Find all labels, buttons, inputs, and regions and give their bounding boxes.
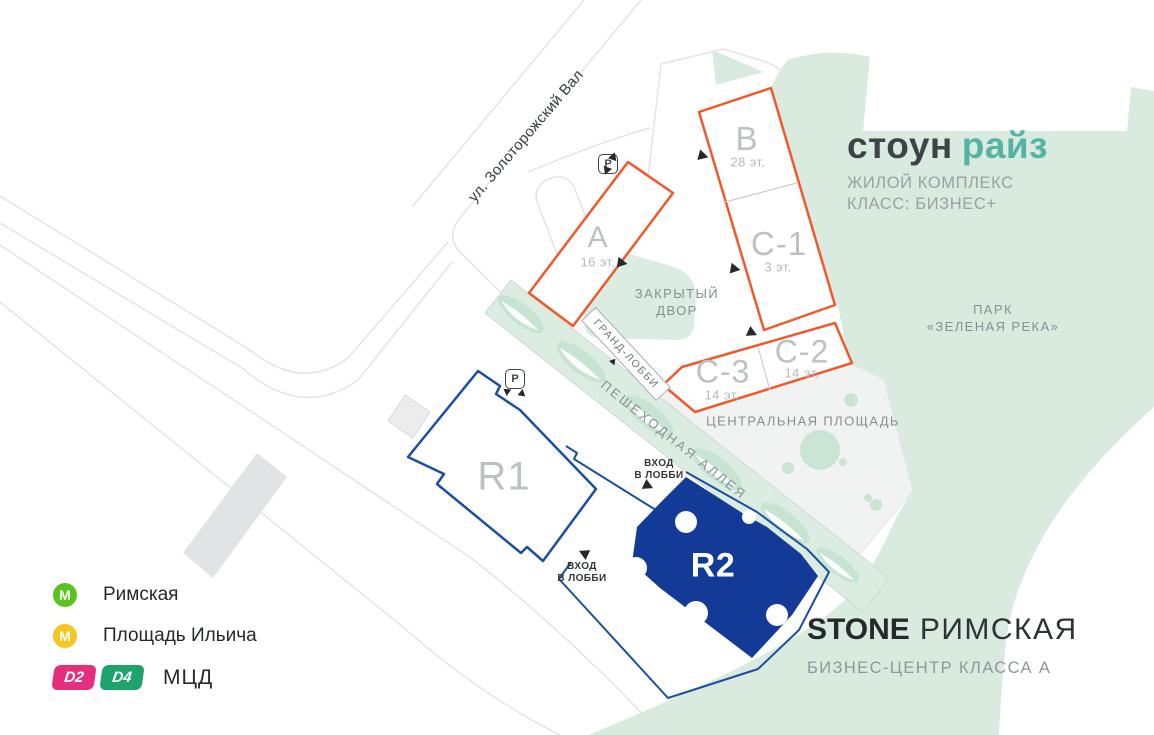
bc-brand: STONE bbox=[807, 613, 910, 646]
metro-icon: М bbox=[53, 583, 77, 607]
lobby-entrance-label-1: ВХОД В ЛОББИ bbox=[634, 458, 683, 482]
mcd-d4-label: D4 bbox=[111, 669, 133, 686]
site-plan-map: ул. Золоторожский Вал ПАРК «ЗЕЛЕНАЯ РЕКА… bbox=[0, 0, 1154, 735]
entrance1-line2: В ЛОББИ bbox=[634, 470, 683, 482]
bc-name: РИМСКАЯ bbox=[920, 613, 1078, 646]
building-r2-label: R2 bbox=[691, 547, 735, 586]
metro-icon: М bbox=[53, 624, 77, 648]
building-c3-label: C-3 bbox=[696, 354, 751, 391]
building-b-floors: 28 эт. bbox=[731, 155, 766, 170]
building-a-floors: 16 эт. bbox=[581, 255, 616, 270]
park-label-line1: ПАРК bbox=[927, 301, 1059, 318]
legend-station-rimskaya: М Римская bbox=[53, 583, 257, 607]
building-r1-label: R1 bbox=[477, 455, 530, 500]
legend-mcd: D2 D4 МЦД bbox=[53, 665, 257, 690]
central-square-label: ЦЕНТРАЛЬНАЯ ПЛОЩАДЬ bbox=[706, 413, 900, 430]
grey-building-footprint bbox=[183, 453, 287, 578]
entrance1-line1: ВХОД bbox=[634, 458, 683, 470]
park-label: ПАРК «ЗЕЛЕНАЯ РЕКА» bbox=[927, 301, 1059, 335]
station-name: Площадь Ильича bbox=[103, 625, 257, 647]
parking-icon: P bbox=[505, 369, 525, 389]
mcd-label: МЦД bbox=[163, 666, 213, 690]
logo-word-stoun: стоун bbox=[847, 125, 953, 166]
courtyard-label-line2: ДВОР bbox=[635, 302, 719, 319]
business-center-caption: STONEРИМСКАЯ БИЗНЕС-ЦЕНТР КЛАССА А bbox=[807, 613, 1078, 678]
building-c1-floors: 3 эт. bbox=[764, 260, 791, 275]
courtyard-label: ЗАКРЫТЫЙ ДВОР bbox=[635, 285, 719, 319]
building-c2-floors: 14 эт. bbox=[785, 366, 820, 381]
park-label-line2: «ЗЕЛЕНАЯ РЕКА» bbox=[927, 318, 1059, 335]
courtyard-label-line1: ЗАКРЫТЫЙ bbox=[635, 285, 719, 302]
legend-station-ploshchad-ilyicha: М Площадь Ильича bbox=[53, 624, 257, 648]
mcd-d2-label: D2 bbox=[63, 669, 85, 686]
station-name: Римская bbox=[103, 584, 178, 606]
entrance2-line2: В ЛОББИ bbox=[557, 573, 606, 585]
mcd-d4-icon: D4 bbox=[99, 665, 145, 690]
grey-building-footprint-small bbox=[388, 395, 430, 438]
entrance2-line1: ВХОД bbox=[557, 561, 606, 573]
bc-subtitle: БИЗНЕС-ЦЕНТР КЛАССА А bbox=[807, 659, 1078, 678]
building-c1-label: C-1 bbox=[751, 225, 807, 263]
residential-logo: стоунрайз ЖИЛОЙ КОМПЛЕКС КЛАСС: БИЗНЕС+ bbox=[847, 126, 1048, 215]
logo-word-rise: райз bbox=[962, 125, 1048, 166]
green-wedge bbox=[712, 50, 764, 85]
building-c3-floors: 14 эт. bbox=[705, 388, 740, 403]
building-b-label: B bbox=[735, 120, 758, 158]
logo-subtitle-line2: КЛАСС: БИЗНЕС+ bbox=[847, 194, 1048, 215]
lobby-entrance-label-2: ВХОД В ЛОББИ bbox=[557, 561, 606, 585]
building-a-label: A bbox=[587, 221, 608, 255]
mcd-d2-icon: D2 bbox=[51, 665, 97, 690]
transit-legend: М Римская М Площадь Ильича D2 D4 МЦД bbox=[53, 583, 257, 690]
logo-subtitle-line1: ЖИЛОЙ КОМПЛЕКС bbox=[847, 173, 1048, 194]
